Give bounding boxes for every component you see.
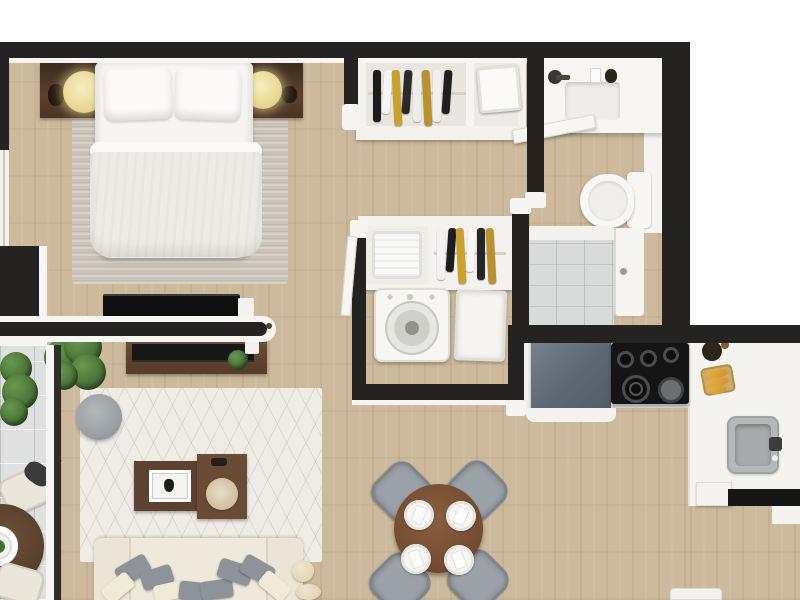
shower-door: [614, 228, 644, 316]
refrigerator: [531, 337, 612, 413]
window-icon: [0, 150, 9, 246]
wall: [662, 42, 690, 332]
throw-pillow: [200, 578, 234, 600]
bedroom-tv: [103, 294, 240, 318]
wall: [344, 42, 358, 110]
counter-step: [696, 482, 732, 506]
garment: [433, 70, 441, 122]
bathroom-bottle: [605, 69, 617, 83]
bathroom-cup: [590, 68, 601, 83]
door-jamb: [510, 198, 531, 214]
garment: [392, 70, 403, 126]
burner-pan: [658, 377, 684, 403]
garment: [373, 70, 381, 122]
plant-icon: [228, 350, 248, 370]
floor-plan: [0, 0, 800, 600]
faucet-knob: [772, 455, 778, 461]
faucet-spout: [556, 75, 570, 80]
garment: [456, 228, 467, 284]
fridge-base: [526, 408, 616, 422]
clothes-rack: [372, 70, 464, 126]
faucet-icon: [769, 437, 782, 451]
plant-icon: [0, 352, 40, 428]
wall: [0, 42, 9, 150]
wall: [527, 42, 544, 194]
shower: [528, 240, 614, 328]
laundry-basket: [372, 231, 422, 279]
burner-icon: [663, 347, 679, 363]
garment: [465, 228, 476, 272]
tv-bracket: [238, 298, 254, 318]
garment: [477, 228, 485, 280]
storage-box: [476, 64, 522, 113]
door-hinge: [266, 323, 272, 329]
shower-door-handle: [620, 268, 627, 275]
door-jamb: [506, 400, 526, 416]
nightstand-decor: [48, 84, 64, 106]
hamper: [454, 289, 507, 362]
counter-corner: [772, 506, 800, 524]
washer-hub: [405, 321, 419, 335]
sofa: [94, 538, 303, 600]
burner-icon: [622, 375, 650, 403]
table-decor: [211, 458, 227, 466]
wall: [0, 322, 267, 336]
wall-edge: [352, 400, 520, 405]
sink-basin: [735, 424, 771, 466]
wall: [352, 384, 520, 400]
garment: [441, 70, 452, 114]
burner-icon: [640, 350, 657, 367]
garment: [486, 228, 497, 284]
burner-icon: [617, 351, 634, 368]
table-decor-flower: [206, 478, 238, 510]
garment: [437, 228, 445, 280]
bed-pillow: [174, 67, 242, 121]
nightstand-decor: [282, 86, 297, 103]
clothes-rack: [436, 228, 506, 286]
garment: [445, 228, 456, 272]
bed-pillow: [103, 67, 173, 121]
duvet: [90, 152, 262, 257]
door-jamb: [342, 104, 360, 130]
wall: [508, 325, 800, 343]
counter-edge: [728, 489, 800, 506]
wall: [512, 206, 529, 332]
ottoman: [292, 560, 314, 582]
bottom-shelf: [670, 588, 722, 600]
garment: [381, 70, 392, 114]
garment: [401, 70, 412, 114]
ottoman: [296, 584, 321, 600]
closet-divider: [466, 62, 474, 126]
frame-art: [164, 479, 174, 492]
toilet-seat: [588, 181, 628, 221]
garment: [422, 70, 433, 126]
pouf: [76, 394, 122, 440]
wall: [508, 325, 524, 402]
balcony-door-frame: [54, 345, 61, 600]
garment: [413, 70, 421, 122]
balcony-door-sill: [46, 345, 54, 600]
